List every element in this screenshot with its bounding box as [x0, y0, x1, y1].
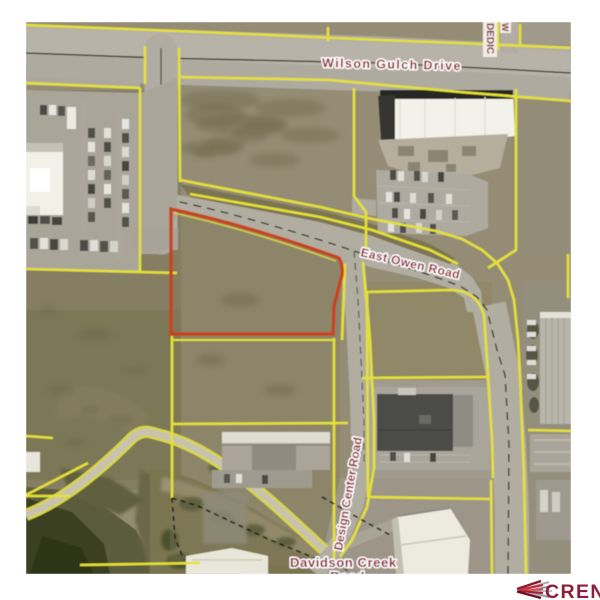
- svg-text:W: W: [500, 23, 510, 32]
- svg-text:Davidson Creek: Davidson Creek: [290, 555, 397, 570]
- svg-text:CREN: CREN: [545, 581, 600, 600]
- svg-text:DEDIC: DEDIC: [484, 23, 495, 54]
